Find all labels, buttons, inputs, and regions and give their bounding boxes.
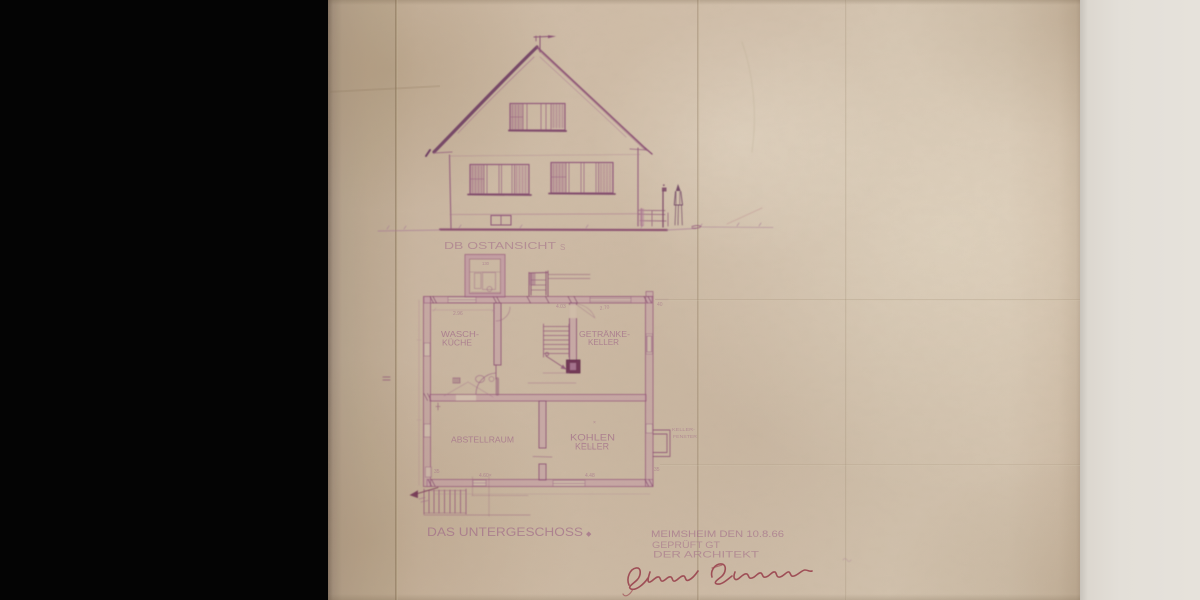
svg-text:KELLER: KELLER: [575, 442, 609, 453]
svg-text:4.03: 4.03: [556, 304, 566, 310]
svg-text:×: ×: [593, 420, 596, 426]
svg-text:MEIMSHEIM DEN 10.8.66: MEIMSHEIM DEN 10.8.66: [651, 529, 784, 540]
svg-text:KELLER-: KELLER-: [672, 427, 696, 432]
svg-text:2.96: 2.96: [453, 311, 463, 317]
svg-text:◆: ◆: [586, 531, 592, 538]
svg-text:FENSTER: FENSTER: [673, 434, 698, 439]
svg-text:KÜCHE: KÜCHE: [442, 338, 473, 348]
svg-text:S: S: [560, 243, 565, 252]
svg-text:35: 35: [654, 467, 660, 473]
svg-text:DAS UNTERGESCHOSS: DAS UNTERGESCHOSS: [427, 525, 583, 539]
svg-text:40: 40: [657, 302, 663, 308]
svg-text:ABSTELLRAUM: ABSTELLRAUM: [451, 436, 514, 445]
svg-text:4.60×: 4.60×: [479, 473, 492, 479]
svg-text:35: 35: [434, 469, 440, 475]
svg-text:4.48: 4.48: [585, 473, 595, 479]
svg-text:DER ARCHITEKT: DER ARCHITEKT: [653, 550, 759, 561]
svg-text:DB OSTANSICHT: DB OSTANSICHT: [444, 241, 556, 252]
svg-text:130: 130: [482, 261, 490, 266]
svg-text:KELLER: KELLER: [588, 338, 619, 347]
